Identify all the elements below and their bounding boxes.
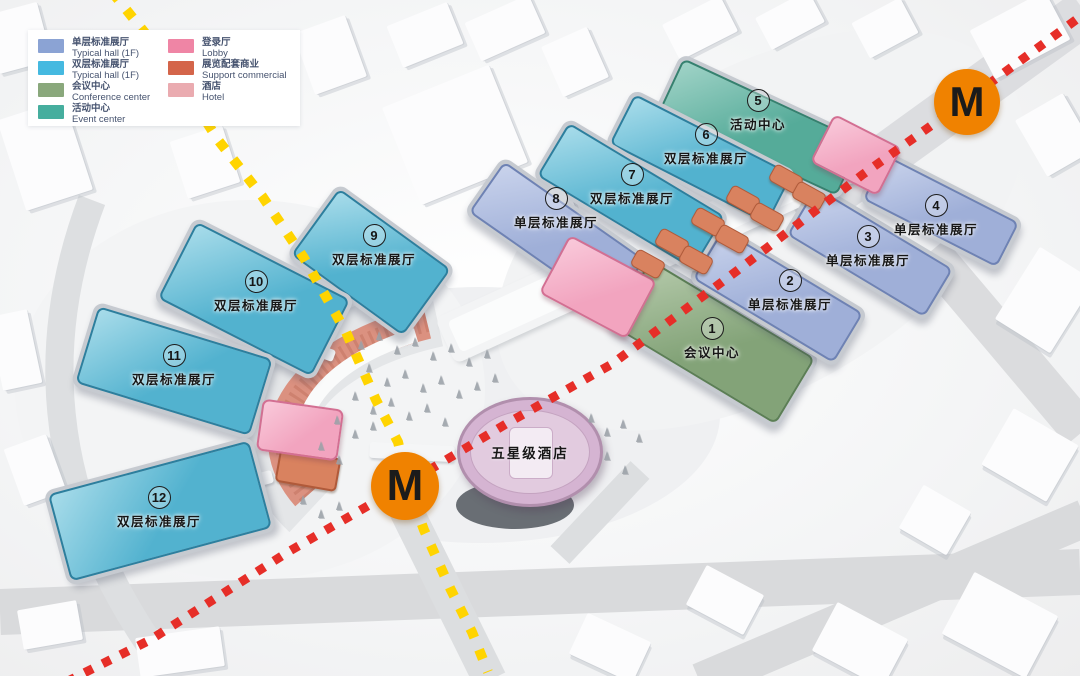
legend-swatch [38,61,64,75]
legend-swatch [38,83,64,97]
legend-label-en: Hotel [202,93,224,104]
hall-name: 双层标准展厅 [664,148,748,167]
hall-number: 12 [147,486,170,509]
legend-text: 单层标准展厅Typical hall (1F) [72,38,139,60]
legend-text: 登录厅Lobby [202,38,231,60]
hall-label-10: 10双层标准展厅 [214,270,298,314]
legend-swatch [38,105,64,119]
hall-name: 活动中心 [730,114,786,133]
hall-label-2: 2单层标准展厅 [748,269,832,313]
hall-label-3: 3单层标准展厅 [826,225,910,269]
legend-label-en: Event center [72,115,125,126]
hall-label-6: 6双层标准展厅 [664,123,748,167]
hall-number: 4 [924,194,947,217]
hall-name: 双层标准展厅 [214,295,298,314]
hall-number: 5 [746,89,769,112]
hall-number: 11 [162,344,185,367]
hall-label-8: 8单层标准展厅 [514,187,598,231]
legend-text: 酒店Hotel [202,82,224,104]
legend-item-lobby: 登录厅Lobby [168,38,231,60]
legend-text: 会议中心Conference center [72,82,150,104]
hall-name: 单层标准展厅 [514,212,598,231]
legend: 单层标准展厅Typical hall (1F)双层标准展厅Typical hal… [28,30,300,126]
legend-item-commercial: 展览配套商业Support commercial [168,60,286,82]
hall-label-11: 11双层标准展厅 [132,344,216,388]
legend-item-single: 单层标准展厅Typical hall (1F) [38,38,139,60]
hall-name: 会议中心 [684,342,740,361]
legend-text: 双层标准展厅Typical hall (1F) [72,60,139,82]
hall-name: 单层标准展厅 [748,294,832,313]
hotel-label: 五星级酒店 [491,442,569,462]
legend-text: 活动中心Event center [72,104,125,126]
legend-text: 展览配套商业Support commercial [202,60,286,82]
legend-item-conference: 会议中心Conference center [38,82,150,104]
hall-label-12: 12双层标准展厅 [117,486,201,530]
hall-name: 单层标准展厅 [894,219,978,238]
hall-name: 双层标准展厅 [590,188,674,207]
hall-label-1: 1会议中心 [684,317,740,361]
legend-swatch [38,39,64,53]
hall-name: 双层标准展厅 [332,249,416,268]
legend-item-hotel: 酒店Hotel [168,82,224,104]
hall-number: 6 [694,123,717,146]
hall-label-9: 9双层标准展厅 [332,224,416,268]
hall-name: 双层标准展厅 [132,369,216,388]
hall-label-7: 7双层标准展厅 [590,163,674,207]
hall-number: 2 [778,269,801,292]
hall-number: 1 [700,317,723,340]
hall-number: 9 [362,224,385,247]
legend-swatch [168,61,194,75]
hall-label-4: 4单层标准展厅 [894,194,978,238]
site-map: MM 五星级酒店 1会议中心2单层标准展厅3单层标准展厅4单层标准展厅5活动中心… [0,0,1080,676]
hall-number: 10 [244,270,267,293]
hall-number: 8 [544,187,567,210]
hall-name: 单层标准展厅 [826,250,910,269]
legend-item-event: 活动中心Event center [38,104,125,126]
legend-swatch [168,83,194,97]
legend-item-double: 双层标准展厅Typical hall (1F) [38,60,139,82]
hall-number: 7 [620,163,643,186]
hall-number: 3 [856,225,879,248]
hall-label-5: 5活动中心 [730,89,786,133]
legend-swatch [168,39,194,53]
hall-name: 双层标准展厅 [117,511,201,530]
